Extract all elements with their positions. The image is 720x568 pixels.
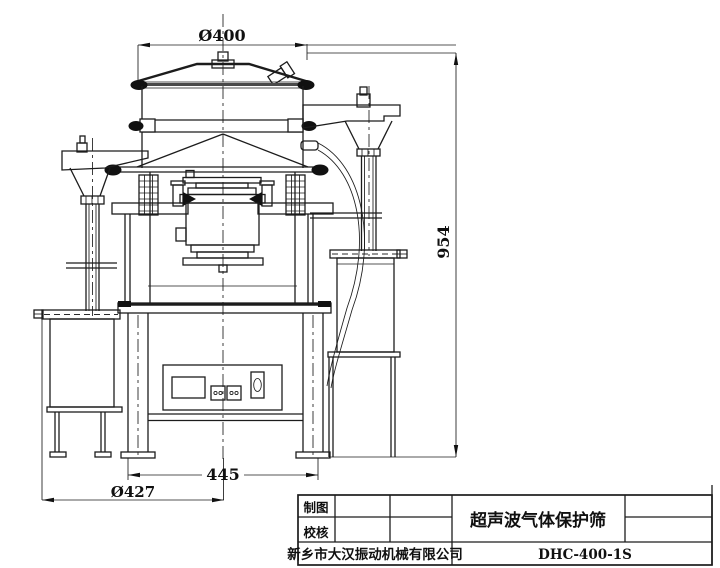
dim-top-diameter-text: Ø400 bbox=[198, 26, 245, 45]
right-funnel-collar bbox=[357, 149, 380, 156]
drawing-sheet: Ø400 954 445 Ø427 制图 bbox=[0, 0, 720, 568]
ultrasonic-cable bbox=[301, 141, 365, 388]
socket-2 bbox=[227, 386, 241, 400]
control-panel bbox=[163, 365, 282, 410]
title-block: 制图 校核 超声波气体保护筛 新乡市大汉振动机械有限公司 DHC-400-1S bbox=[287, 485, 712, 565]
drawing-title: 超声波气体保护筛 bbox=[470, 510, 606, 530]
band-clamp-left bbox=[129, 121, 144, 131]
display-window bbox=[172, 377, 205, 398]
lower-drum bbox=[125, 172, 313, 303]
dimension-base-width: 445 bbox=[128, 458, 318, 484]
left-barrel bbox=[34, 310, 122, 457]
model-number: DHC-400-1S bbox=[538, 547, 632, 563]
right-barrel-body bbox=[337, 258, 394, 352]
checked-by-label: 校核 bbox=[303, 525, 329, 540]
left-barrel-shelf bbox=[47, 407, 122, 412]
left-barrel-body bbox=[50, 319, 114, 407]
power-switch bbox=[251, 372, 264, 398]
band-block-right bbox=[288, 119, 303, 132]
inner-cone bbox=[137, 134, 223, 167]
spring-left bbox=[139, 175, 158, 215]
lid-assembly bbox=[131, 52, 315, 90]
rim-clamp-right bbox=[298, 80, 315, 90]
flange-clamp-right bbox=[312, 165, 329, 176]
motor-body bbox=[186, 203, 259, 245]
company-name: 新乡市大汉振动机械有限公司 bbox=[287, 546, 463, 562]
right-funnel bbox=[345, 121, 359, 149]
rim-clamp-left bbox=[131, 80, 148, 90]
drawn-by-label: 制图 bbox=[303, 500, 328, 515]
screen-body bbox=[105, 86, 329, 176]
dim-base-width-text: 445 bbox=[206, 465, 239, 484]
engineering-drawing: Ø400 954 445 Ø427 制图 bbox=[0, 0, 720, 568]
dim-total-height-text: 954 bbox=[434, 225, 453, 258]
right-bracket-arm bbox=[303, 105, 400, 128]
left-funnel bbox=[70, 168, 84, 196]
left-discharge bbox=[62, 136, 148, 311]
base-frame bbox=[118, 301, 331, 458]
dim-base-diameter-text: Ø427 bbox=[111, 483, 155, 501]
